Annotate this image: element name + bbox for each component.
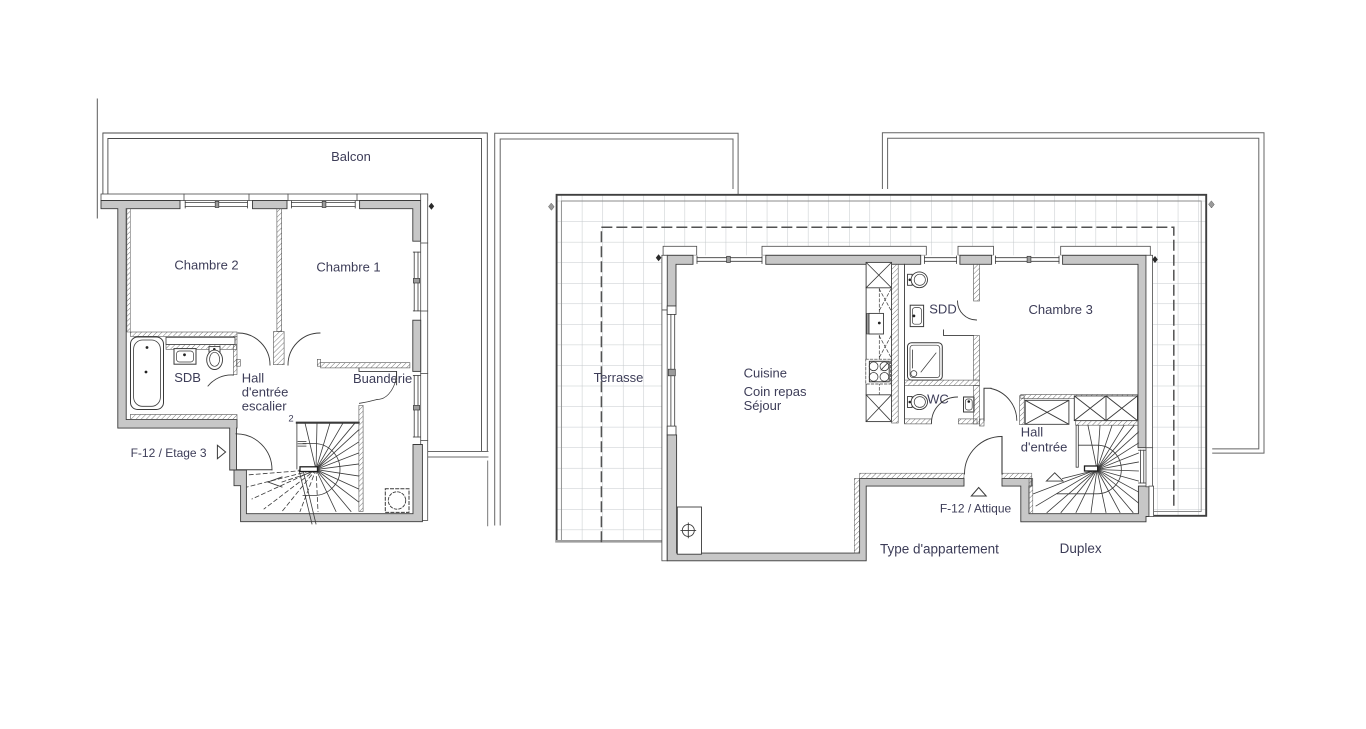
svg-text:Buanderie: Buanderie	[353, 371, 412, 386]
svg-text:Chambre 1: Chambre 1	[316, 260, 380, 275]
svg-text:d'entrée: d'entrée	[1021, 440, 1068, 455]
svg-text:Cuisine: Cuisine	[744, 366, 787, 381]
svg-text:escalier: escalier	[242, 399, 287, 414]
svg-text:2: 2	[288, 414, 293, 425]
svg-text:F-12 / Etage 3: F-12 / Etage 3	[131, 446, 207, 460]
svg-text:Type d'appartement: Type d'appartement	[880, 541, 999, 556]
svg-text:WC: WC	[927, 392, 949, 407]
svg-text:SDD: SDD	[929, 302, 956, 317]
svg-text:Chambre 3: Chambre 3	[1029, 302, 1093, 317]
svg-text:Chambre 2: Chambre 2	[174, 258, 238, 273]
svg-text:Coin repas: Coin repas	[744, 384, 807, 399]
svg-text:Séjour: Séjour	[744, 398, 782, 413]
svg-text:d'entrée: d'entrée	[242, 385, 289, 400]
svg-text:Hall: Hall	[1021, 425, 1044, 440]
svg-text:Hall: Hall	[242, 371, 265, 386]
svg-text:SDB: SDB	[174, 370, 201, 385]
svg-text:Balcon: Balcon	[331, 149, 371, 164]
svg-text:Terrasse: Terrasse	[594, 370, 644, 385]
svg-text:Duplex: Duplex	[1060, 541, 1102, 556]
svg-text:F-12 / Attique: F-12 / Attique	[940, 502, 1012, 516]
